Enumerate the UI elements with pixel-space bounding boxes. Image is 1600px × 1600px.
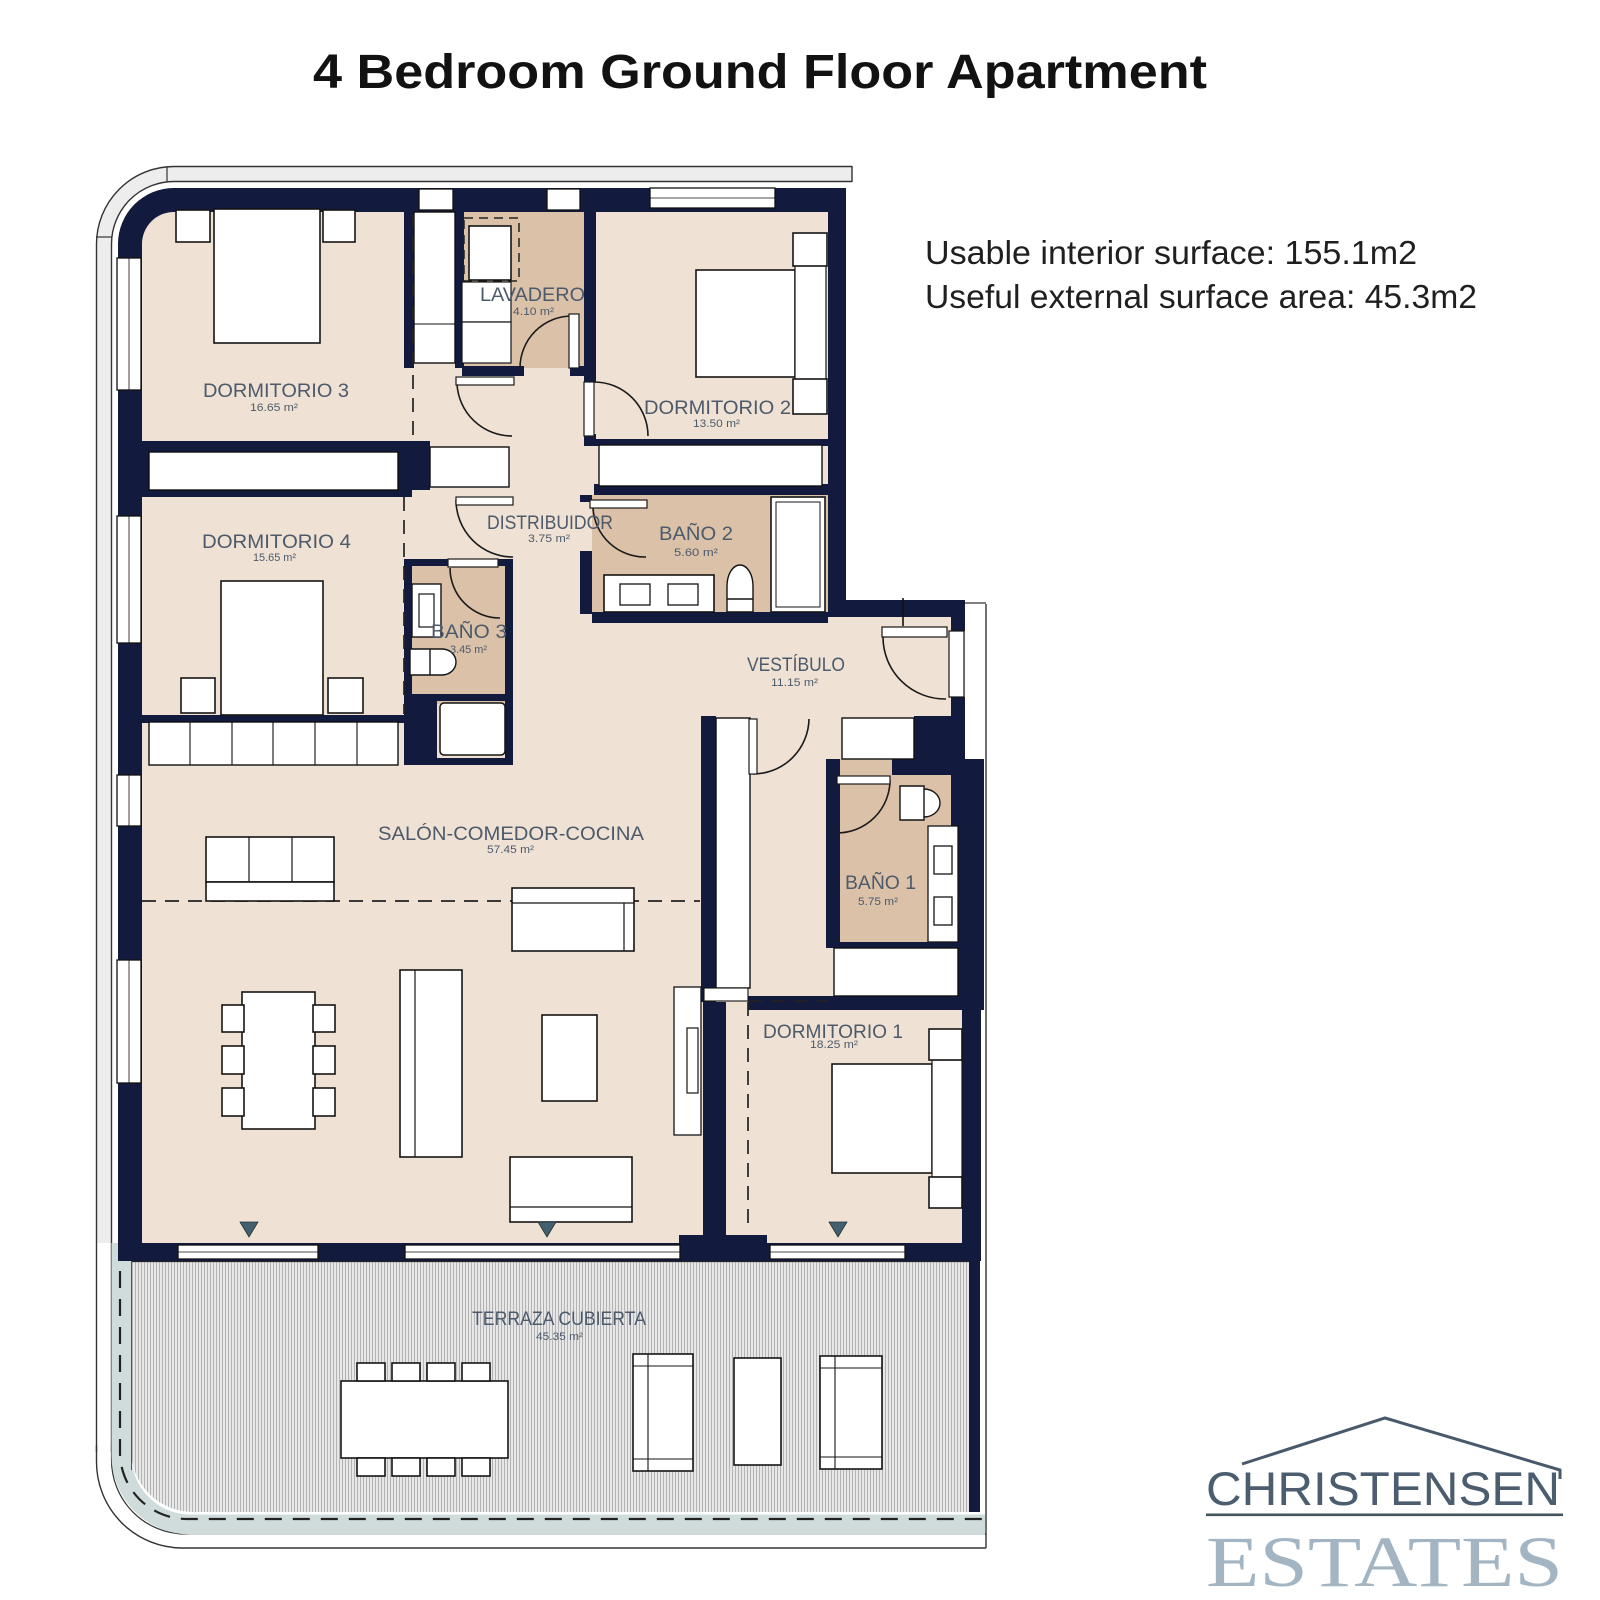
- svg-text:DORMITORIO 4: DORMITORIO 4: [202, 531, 351, 553]
- svg-text:Useful external surface area:: Useful external surface area: 45.3m2: [925, 278, 1477, 315]
- svg-text:5.60 m²: 5.60 m²: [674, 547, 718, 559]
- svg-text:15.65 m²: 15.65 m²: [253, 552, 296, 564]
- svg-text:BAÑO 2: BAÑO 2: [659, 521, 733, 545]
- svg-text:3.75 m²: 3.75 m²: [528, 533, 570, 545]
- svg-text:11.15 m²: 11.15 m²: [771, 677, 818, 689]
- svg-text:SALÓN-COMEDOR-COCINA: SALÓN-COMEDOR-COCINA: [378, 822, 644, 845]
- svg-text:BAÑO 3: BAÑO 3: [431, 619, 507, 643]
- svg-text:4 Bedroom Ground Floor Apartme: 4 Bedroom Ground Floor Apartment: [313, 46, 1207, 99]
- svg-text:45.35 m²: 45.35 m²: [536, 1331, 583, 1343]
- svg-text:DISTRIBUIDOR: DISTRIBUIDOR: [487, 512, 613, 534]
- svg-text:18.25 m²: 18.25 m²: [810, 1039, 858, 1051]
- svg-text:CHRISTENSEN: CHRISTENSEN: [1206, 1462, 1560, 1515]
- svg-text:13.50 m²: 13.50 m²: [693, 418, 740, 430]
- svg-text:DORMITORIO 3: DORMITORIO 3: [203, 380, 349, 402]
- svg-text:3.45 m²: 3.45 m²: [450, 644, 487, 656]
- svg-text:DORMITORIO 2: DORMITORIO 2: [644, 397, 791, 419]
- svg-text:5.75 m²: 5.75 m²: [858, 896, 898, 908]
- svg-text:LAVADERO: LAVADERO: [480, 284, 585, 306]
- svg-text:Usable interior surface: 155.1: Usable interior surface: 155.1m2: [925, 234, 1417, 271]
- svg-text:ESTATES: ESTATES: [1206, 1522, 1563, 1600]
- svg-text:TERRAZA CUBIERTA: TERRAZA CUBIERTA: [472, 1308, 646, 1330]
- svg-text:4.10 m²: 4.10 m²: [513, 306, 554, 318]
- svg-text:BAÑO 1: BAÑO 1: [845, 870, 916, 894]
- svg-text:VESTÍBULO: VESTÍBULO: [747, 653, 845, 676]
- svg-text:16.65 m²: 16.65 m²: [250, 402, 298, 414]
- svg-text:57.45 m²: 57.45 m²: [487, 844, 534, 856]
